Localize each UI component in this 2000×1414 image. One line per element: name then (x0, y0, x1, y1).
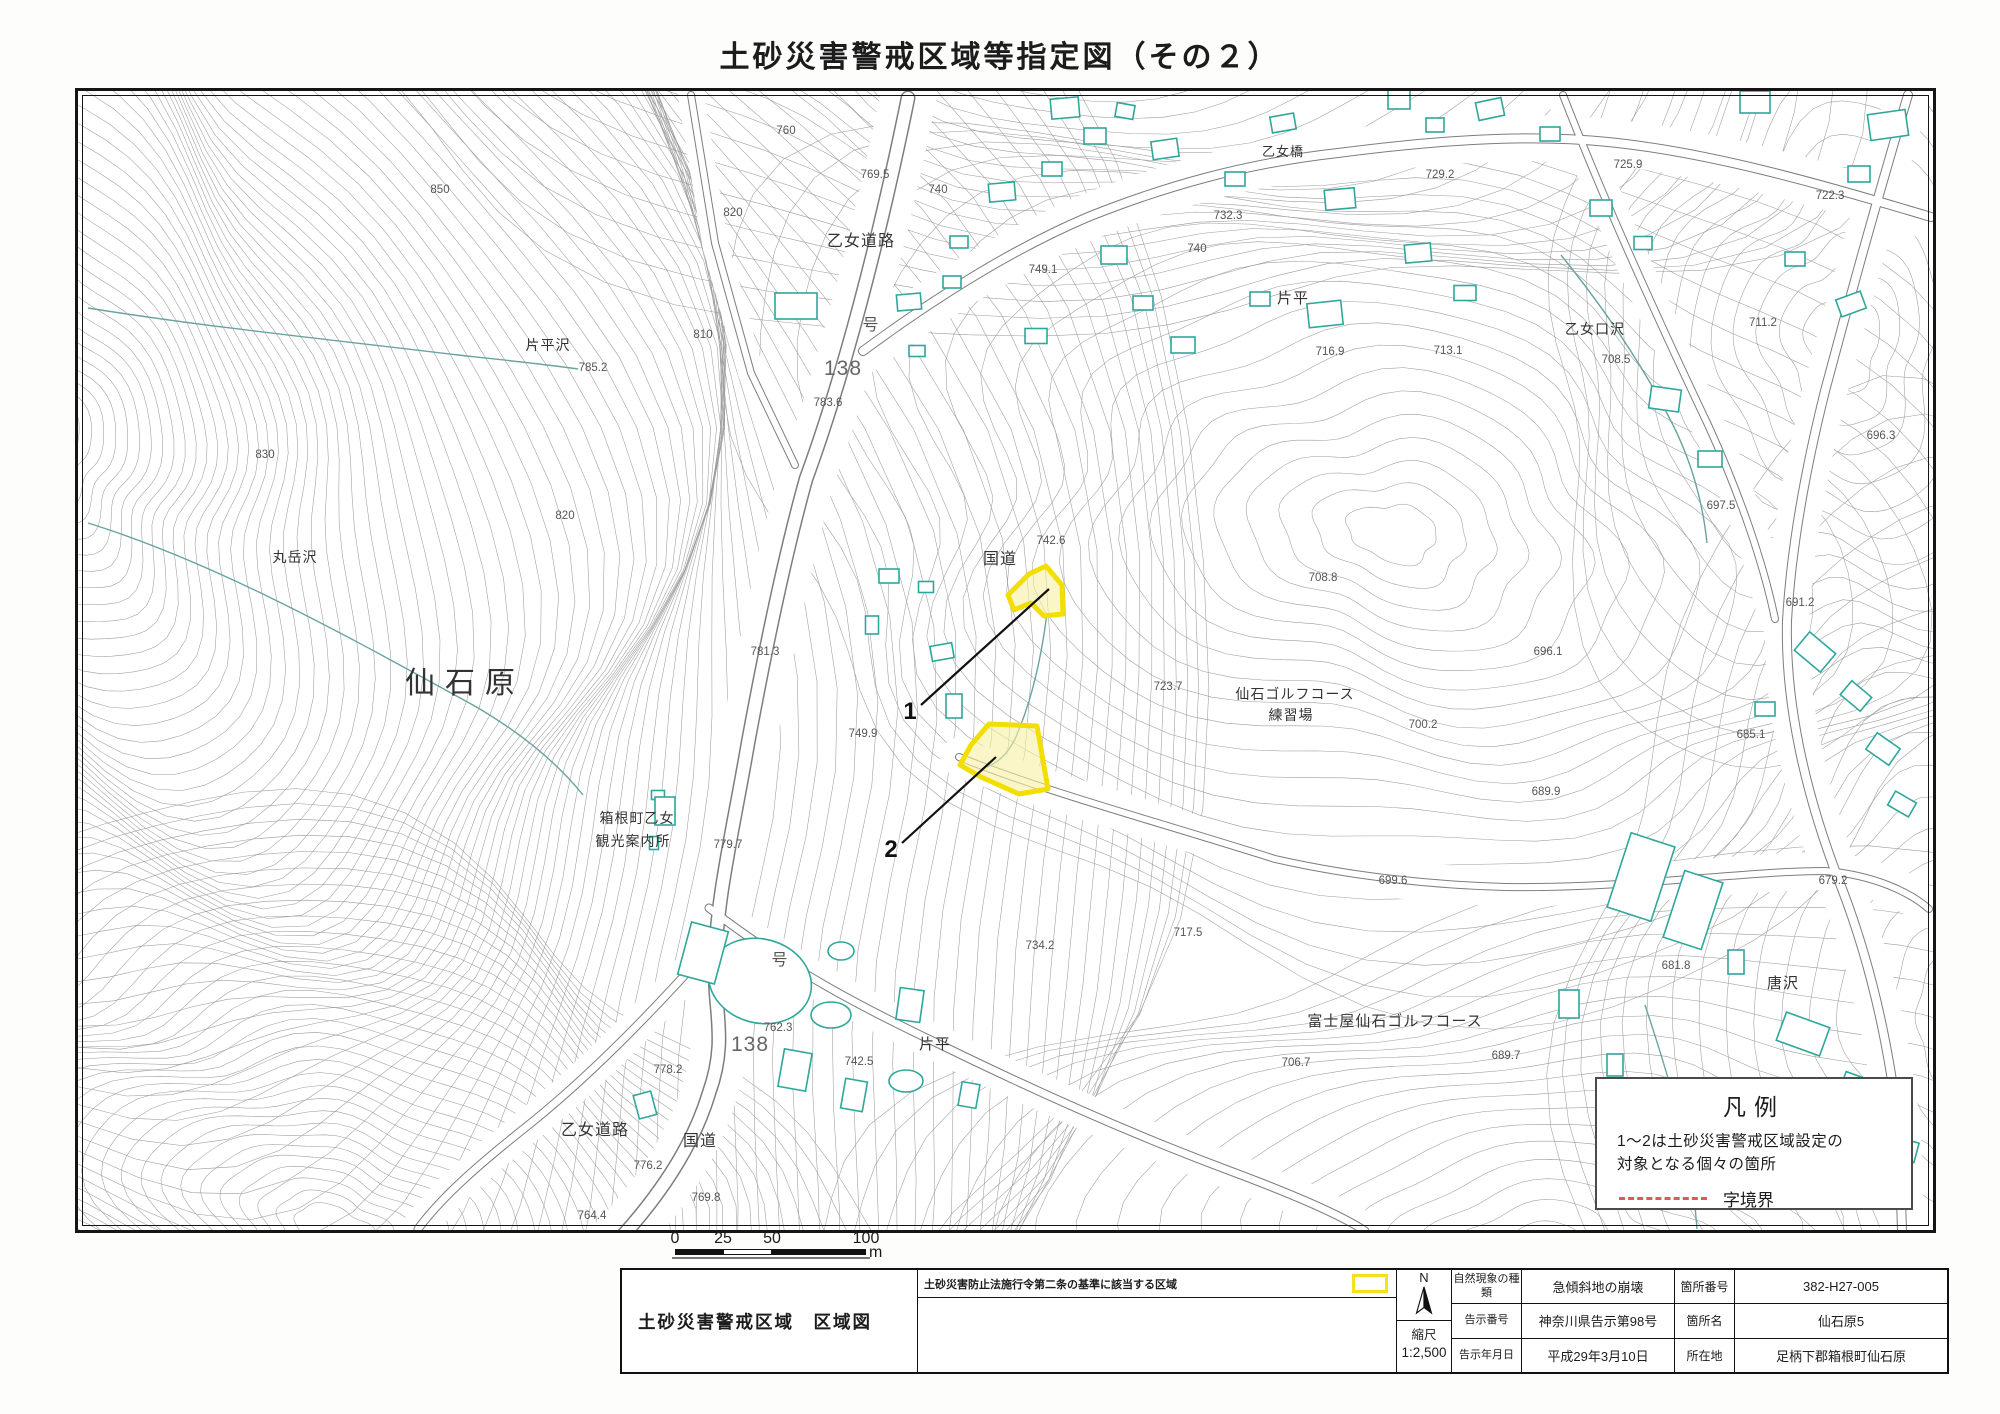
elevation-label: 778.2 (654, 1064, 683, 1076)
building (1607, 833, 1675, 921)
map-canvas: 12仙石原片平沢丸岳沢乙女道路乙女道路国道国道138138号号箱根町乙女観光案内… (75, 88, 1936, 1233)
elevation-label: 783.6 (814, 397, 843, 409)
place-label: 138 (824, 357, 862, 380)
building (841, 1078, 868, 1111)
table-row: 自然現象の種類 急傾斜地の崩壊 箇所番号 382-H27-005 (1452, 1270, 1947, 1304)
table-row: 告示番号 神奈川県告示第98号 箇所名 仙石原5 (1452, 1304, 1947, 1338)
building (1042, 162, 1062, 176)
elevation-label: 740 (928, 184, 947, 196)
north-arrow-icon (1411, 1285, 1437, 1315)
elevation-label: 830 (255, 449, 274, 461)
attr-label: 箇所名 (1675, 1304, 1735, 1337)
attr-value: 平成29年3月10日 (1522, 1339, 1675, 1372)
elevation-label: 700.2 (1409, 719, 1438, 731)
place-label: 片平 (919, 1036, 951, 1053)
table-row: 告示年月日 平成29年3月10日 所在地 足柄下郡箱根町仙石原 (1452, 1339, 1947, 1372)
elevation-label: 769.5 (861, 169, 890, 181)
scale-baseline (672, 1257, 870, 1259)
elevation-label: 679.2 (1819, 875, 1848, 887)
scale-value: 1:2,500 (1397, 1345, 1451, 1360)
building (1785, 252, 1805, 266)
elevation-label: 713.1 (1434, 345, 1463, 357)
place-label: 唐沢 (1767, 975, 1799, 992)
elevation-label: 760 (776, 125, 795, 137)
building (1025, 329, 1047, 344)
building (1740, 91, 1770, 113)
building (919, 582, 934, 593)
building (909, 346, 925, 357)
building (775, 293, 817, 319)
elevation-label: 696.3 (1867, 430, 1896, 442)
criteria-note: 土砂災害防止法施行令第二条の基準に該当する区域 (924, 1276, 1177, 1292)
hazard-map-document: { "title": "土砂災害警戒区域等指定図（その２）", "legend"… (0, 0, 2000, 1414)
elevation-label: 706.7 (1282, 1057, 1311, 1069)
building (1324, 188, 1356, 211)
elevation-label: 732.3 (1214, 210, 1243, 222)
building (1426, 118, 1444, 132)
attr-label: 告示番号 (1452, 1304, 1522, 1337)
building (1151, 138, 1179, 159)
scale-segment (772, 1249, 866, 1255)
place-label: 国道 (683, 1132, 717, 1150)
scale-tick-25: 25 (714, 1230, 732, 1248)
building (633, 1091, 657, 1119)
building (988, 182, 1015, 202)
elevation-label: 850 (430, 184, 449, 196)
place-label: 片平沢 (526, 337, 571, 353)
elevation-label: 785.2 (579, 362, 608, 374)
scale-bar: 0 25 50 100 m (655, 1230, 945, 1266)
building (1404, 243, 1431, 263)
elevation-label: 723.7 (1154, 681, 1183, 693)
building (958, 1082, 980, 1109)
elevation-label: 749.1 (1029, 264, 1058, 276)
elevation-label: 779.7 (714, 839, 743, 851)
building (1270, 113, 1296, 133)
building (1084, 128, 1106, 144)
building (1590, 200, 1612, 216)
place-label: 片平 (1277, 290, 1309, 307)
building (1776, 1012, 1829, 1056)
attr-label: 告示年月日 (1452, 1339, 1522, 1372)
building (1101, 246, 1127, 264)
building (1866, 733, 1900, 765)
legend-box: 凡例 1～2は土砂災害警戒区域設定の 対象となる個々の箇所 字境界 (1595, 1077, 1913, 1210)
elevation-label: 781.3 (751, 646, 780, 658)
elevation-label: 820 (723, 207, 742, 219)
criteria-cell: 土砂災害防止法施行令第二条の基準に該当する区域 (918, 1270, 1397, 1372)
scale-segment (675, 1249, 723, 1255)
elevation-label: 708.8 (1309, 572, 1338, 584)
elevation-label: 697.5 (1707, 500, 1736, 512)
scale-unit: m (869, 1244, 882, 1262)
place-label: 138 (731, 1033, 769, 1056)
elevation-label: 708.5 (1602, 354, 1631, 366)
attr-value: 仙石原5 (1735, 1304, 1947, 1337)
attr-value: 足柄下郡箱根町仙石原 (1735, 1339, 1947, 1372)
building (1559, 990, 1579, 1018)
building (1755, 702, 1775, 716)
place-label: 号 (862, 316, 879, 334)
elevation-label: 810 (693, 329, 712, 341)
elevation-label: 699.6 (1379, 875, 1408, 887)
attr-value: 382-H27-005 (1735, 1270, 1947, 1303)
building (1540, 127, 1560, 141)
building (1698, 451, 1722, 467)
place-label: 仙石ゴルフコース (1235, 686, 1354, 702)
hazard-zone-swatch (1352, 1274, 1388, 1293)
building (778, 1049, 812, 1091)
building (1307, 300, 1343, 327)
elevation-label: 764.4 (578, 1210, 607, 1222)
legend-text-line2: 対象となる個々の箇所 (1617, 1152, 1911, 1174)
zone-marker-label: 1 (903, 698, 916, 725)
building (1388, 91, 1410, 109)
north-label: N (1397, 1271, 1451, 1285)
elevation-label: 740 (1187, 243, 1206, 255)
elevation-label: 769.8 (692, 1192, 721, 1204)
elevation-label: 696.1 (1534, 646, 1563, 658)
elevation-label: 681.8 (1662, 960, 1691, 972)
compass-scale-cell: N 縮尺 1:2,500 (1397, 1270, 1452, 1372)
zone-marker-label: 2 (884, 836, 897, 863)
elevation-label: 716.9 (1316, 346, 1345, 358)
elevation-label: 729.2 (1426, 169, 1455, 181)
building (1133, 296, 1153, 310)
elevation-label: 722.3 (1816, 190, 1845, 202)
legend-text-line1: 1～2は土砂災害警戒区域設定の (1617, 1129, 1911, 1151)
attr-label: 箇所番号 (1675, 1270, 1735, 1303)
elevation-label: 749.9 (849, 728, 878, 740)
scale-word: 縮尺 (1397, 1324, 1451, 1343)
page-title: 土砂災害警戒区域等指定図（その２） (0, 32, 2000, 76)
building (1250, 292, 1270, 306)
attr-value: 急傾斜地の崩壊 (1522, 1270, 1675, 1303)
place-label: 観光案内所 (596, 833, 671, 849)
place-label: 仙石原 (405, 667, 525, 700)
building (1867, 109, 1908, 140)
elevation-label: 776.2 (634, 1160, 663, 1172)
building (1607, 1054, 1623, 1076)
building (866, 616, 879, 634)
boundary-label: 字境界 (1723, 1186, 1774, 1211)
place-label: 練習場 (1269, 707, 1314, 723)
hazard-zone-polygon (1008, 566, 1063, 616)
boundary-dashed-line-sample (1619, 1197, 1707, 1200)
building (896, 293, 921, 311)
building (879, 569, 899, 583)
elevation-label: 734.2 (1026, 940, 1055, 952)
building (1728, 950, 1744, 974)
compass: N (1397, 1271, 1451, 1321)
building (943, 276, 961, 288)
building (930, 643, 954, 662)
elevation-label: 725.9 (1614, 159, 1643, 171)
building (950, 236, 968, 248)
building (1888, 791, 1917, 817)
title-block-table: 土砂災害警戒区域 区域図 土砂災害防止法施行令第二条の基準に該当する区域 N 縮… (620, 1268, 1949, 1374)
attr-label: 自然現象の種類 (1452, 1270, 1522, 1303)
scale-tick-50: 50 (763, 1230, 781, 1248)
building (1649, 386, 1682, 412)
attr-value: 神奈川県告示第98号 (1522, 1304, 1675, 1337)
elevation-label: 691.2 (1786, 597, 1815, 609)
elevation-label: 685.1 (1737, 729, 1766, 741)
elevation-label: 820 (555, 510, 574, 522)
elevation-label: 689.7 (1492, 1050, 1521, 1062)
scale-segment (723, 1249, 772, 1255)
hazard-zone-polygon (960, 724, 1048, 794)
map-sheet-title: 土砂災害警戒区域 区域図 (622, 1270, 918, 1372)
building (1225, 172, 1245, 186)
place-label: 富士屋仙石ゴルフコース (1307, 1012, 1482, 1030)
building (896, 987, 924, 1022)
elevation-label: 717.5 (1174, 927, 1203, 939)
building (1050, 97, 1080, 119)
building (1634, 237, 1652, 250)
attr-label: 所在地 (1675, 1339, 1735, 1372)
elevation-label: 711.2 (1749, 317, 1777, 329)
building (1840, 681, 1871, 712)
elevation-label: 762.3 (764, 1022, 793, 1034)
place-label: 箱根町乙女 (600, 810, 675, 826)
building (946, 694, 962, 718)
hazard-zones (960, 566, 1063, 794)
elevation-label: 689.9 (1532, 786, 1561, 798)
scale-tick-0: 0 (671, 1230, 680, 1248)
building (1454, 286, 1476, 301)
building (1848, 166, 1870, 182)
building (1115, 103, 1135, 120)
place-label: 乙女口沢 (1565, 321, 1625, 337)
place-label: 乙女道路 (827, 231, 895, 250)
building (1171, 337, 1195, 353)
place-label: 乙女道路 (561, 1120, 629, 1139)
elevation-label: 742.6 (1037, 535, 1066, 547)
topographic-map: 12仙石原片平沢丸岳沢乙女道路乙女道路国道国道138138号号箱根町乙女観光案内… (78, 91, 1933, 1230)
place-label: 号 (771, 951, 788, 969)
legend-title: 凡例 (1597, 1088, 1911, 1122)
place-label: 国道 (983, 550, 1017, 568)
elevation-label: 742.5 (845, 1056, 874, 1068)
attribute-rows: 自然現象の種類 急傾斜地の崩壊 箇所番号 382-H27-005 告示番号 神奈… (1452, 1270, 1947, 1372)
place-label: 乙女橋 (1262, 144, 1304, 159)
place-label: 丸岳沢 (273, 549, 318, 565)
